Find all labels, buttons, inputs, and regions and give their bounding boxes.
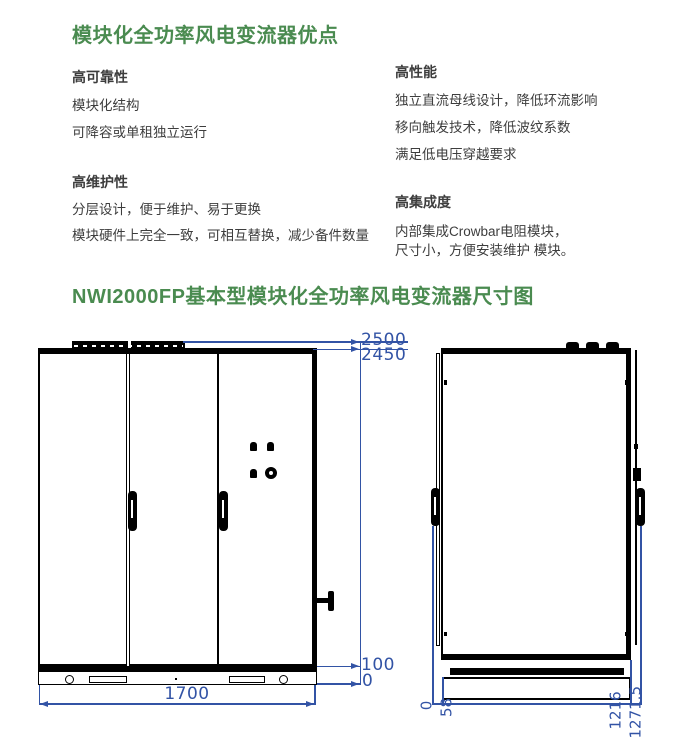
feature-line: 分层设计，便于维护、易于更换: [72, 198, 261, 218]
base-dot: [175, 678, 177, 680]
feature-line: 模块硬件上完全一致，可相互替换，减少备件数量: [72, 224, 369, 244]
dim-arrow: [351, 346, 359, 352]
side-handle-front: [431, 488, 440, 526]
side-dim-line-0: [432, 526, 434, 703]
dim-label-0: 0: [362, 673, 373, 690]
front-view-cabinet: [38, 348, 317, 666]
dim-arrow: [351, 663, 359, 669]
handle-slit: [434, 497, 436, 515]
front-base: [38, 666, 317, 685]
hinge-mark: [444, 632, 447, 636]
handle-slit: [639, 497, 641, 515]
control-knob: [265, 467, 277, 479]
handle-slit: [222, 500, 224, 518]
hinge-mark: [625, 632, 628, 636]
roof-gland: [606, 342, 619, 349]
feature-heading-maintainability: 高维护性: [72, 172, 128, 192]
dim-arrow: [40, 701, 48, 707]
feature-heading-reliability: 高可靠性: [72, 67, 128, 87]
side-base: [442, 677, 631, 700]
width-dim-ext-right: [314, 685, 316, 705]
dim-label-2450: 2450: [361, 347, 406, 364]
dim-label-depth-58: 58: [440, 697, 455, 719]
dim-label-depth-1216: 1216: [609, 692, 624, 730]
side-latch-small: [634, 444, 638, 449]
feature-line: 可降容或单租独立运行: [72, 121, 207, 141]
base-bolt: [65, 675, 74, 684]
feature-line: 满足低电压穿越要求: [395, 143, 517, 163]
base-bolt: [279, 675, 288, 684]
control-button: [250, 469, 257, 478]
dim-label-depth-1271: 1271.5: [629, 689, 644, 739]
front-door-handle-right: [219, 491, 228, 531]
brochure-page: 模块化全功率风电变流器优点 高可靠性 模块化结构 可降容或单租独立运行 高维护性…: [0, 0, 688, 744]
feature-line: 模块化结构: [72, 94, 140, 114]
feature-line: 移向触发技术，降低波纹系数: [395, 116, 571, 136]
dim-arrow: [306, 701, 314, 707]
dim-label-depth-0: 0: [420, 699, 435, 713]
control-button: [267, 442, 274, 451]
dim-arrow: [351, 681, 359, 687]
side-recessed-bar: [450, 668, 624, 675]
front-door-handle-left: [128, 491, 137, 531]
front-roof-terminal-strip: [72, 341, 185, 348]
side-dim-line-1271: [640, 526, 642, 704]
side-latch: [633, 468, 641, 481]
base-slot: [89, 676, 127, 683]
dim-arrow: [351, 339, 359, 345]
front-dim-vertical-line: [360, 342, 362, 685]
roof-gland: [586, 342, 599, 349]
hinge-mark: [625, 380, 628, 385]
feature-line: 内部集成Crowbar电阻模块，: [395, 220, 568, 240]
front-side-handle-bar: [328, 591, 334, 611]
feature-line: 尺寸小，方便安装维护 模块。: [395, 239, 574, 259]
handle-slit: [131, 500, 133, 518]
dim-label-1700: 1700: [137, 686, 237, 703]
side-handle-rear: [636, 488, 645, 526]
section2-title: NWI2000FP基本型模块化全功率风电变流器尺寸图: [72, 280, 534, 309]
section1-title: 模块化全功率风电变流器优点: [72, 19, 339, 48]
side-view-cabinet: [441, 348, 631, 660]
dimension-drawing: 2500 2450 100 0 1700: [0, 320, 688, 744]
roof-gland: [566, 342, 579, 349]
feature-line: 独立直流母线设计，降低环流影响: [395, 89, 598, 109]
hinge-mark: [444, 380, 447, 385]
control-button: [250, 442, 257, 451]
base-slot: [229, 676, 265, 683]
feature-heading-performance: 高性能: [395, 62, 437, 82]
feature-heading-integration: 高集成度: [395, 192, 451, 212]
terminal-strip-gap: [128, 341, 131, 348]
